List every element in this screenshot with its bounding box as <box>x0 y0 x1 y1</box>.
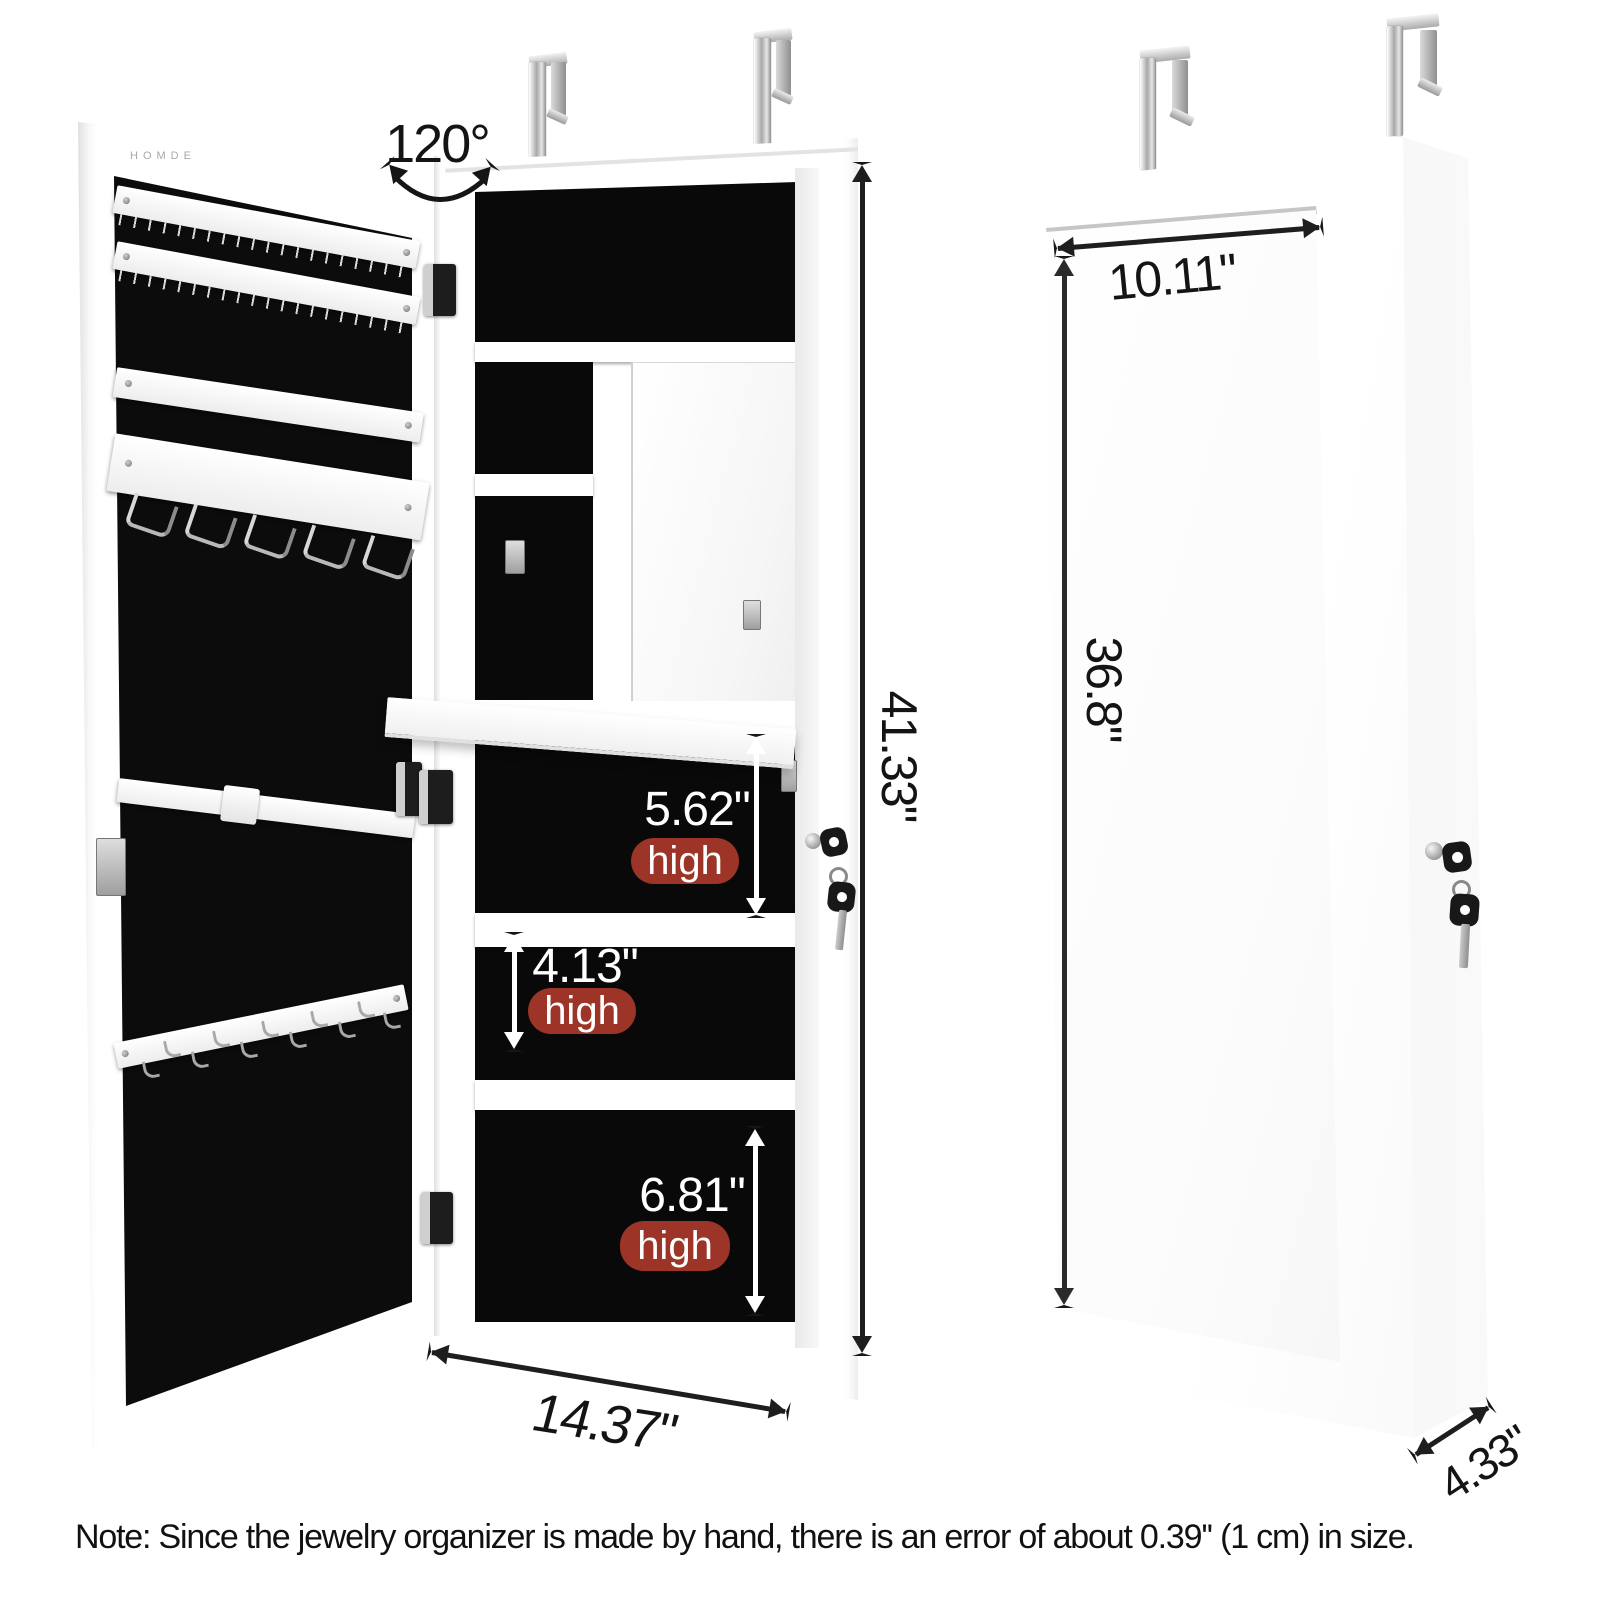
key-icon <box>1441 840 1473 874</box>
top-compartment <box>475 182 797 342</box>
compartment1-high-badge: high <box>631 838 739 884</box>
interior-mirror <box>631 362 797 701</box>
compartment3-value: 6.81" <box>582 1168 802 1223</box>
arrowhead-down <box>1054 1288 1074 1308</box>
width-dimension-label: 14.37" <box>468 1373 741 1474</box>
height-dimension-label: 41.33" <box>870 606 928 906</box>
door-hinge-icon <box>419 770 453 824</box>
necklace-hook-icon <box>310 1008 328 1029</box>
wire-hook-icon <box>242 514 297 561</box>
shelf <box>475 342 797 362</box>
compartment3-high-badge: high <box>620 1221 730 1271</box>
arrowhead-up <box>745 1126 765 1146</box>
necklace-hook-icon <box>163 1038 181 1059</box>
arrowhead-up <box>746 734 766 754</box>
arrowhead-down <box>504 1032 524 1052</box>
door-hinge-icon <box>424 264 456 316</box>
compartment1-value: 5.62" <box>587 782 807 837</box>
necklace-hook-icon <box>261 1018 279 1039</box>
arrowhead-down <box>745 1296 765 1316</box>
open-door: HOMDE <box>78 122 432 1448</box>
magnet-latch-icon <box>505 540 525 574</box>
lock-icon <box>1425 842 1443 860</box>
note-text: Note: Since the jewelry organizer is mad… <box>75 1518 1414 1557</box>
height-dimension-line <box>860 176 865 1336</box>
door-latch-icon <box>96 838 126 896</box>
lock-icon <box>805 833 821 849</box>
door-fold-line <box>434 156 444 1336</box>
magnet-latch-icon <box>743 600 761 630</box>
shelf <box>475 474 593 496</box>
wire-hook-icon <box>301 524 356 571</box>
shelf <box>475 1080 797 1110</box>
key-icon <box>827 881 857 914</box>
compartment2-high-badge: high <box>528 988 636 1034</box>
necklace-hook-icon <box>357 999 375 1020</box>
necklace-hook-icon <box>212 1028 230 1049</box>
arrowhead-up <box>852 162 872 182</box>
door-hinge-icon <box>421 1192 453 1244</box>
mirror-height-label: 36.8" <box>1075 569 1133 809</box>
compartment2-value: 4.13" <box>475 939 695 994</box>
brand-label: HOMDE <box>130 150 196 162</box>
small-compartment <box>475 496 593 700</box>
product-dimension-diagram: HOMDE <box>0 0 1600 1600</box>
wire-hook-icon <box>183 504 238 551</box>
arrowhead-down <box>746 898 766 918</box>
arrowhead-up <box>1054 256 1074 276</box>
key-icon <box>1449 893 1480 927</box>
small-compartment <box>475 362 593 474</box>
arrowhead-down <box>852 1336 872 1356</box>
mirror-height-dimension-line <box>1062 270 1067 1288</box>
wire-hook-icon <box>360 535 415 582</box>
